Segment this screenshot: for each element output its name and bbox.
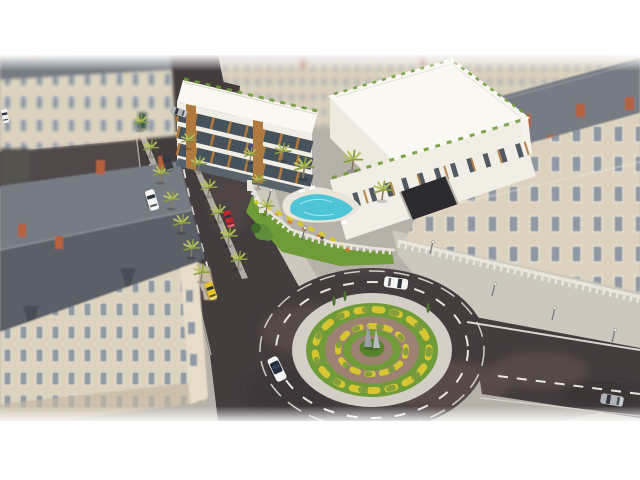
left-edge-blur xyxy=(0,148,30,188)
tilt-shift-fade-top xyxy=(0,55,640,71)
letterbox-top xyxy=(0,0,640,55)
island-cypress xyxy=(343,291,346,301)
letterbox-bottom xyxy=(0,421,640,480)
aerial-render xyxy=(0,0,640,480)
classical-building-corner-left xyxy=(0,156,216,428)
tilt-shift-fade-bottom xyxy=(0,406,640,421)
render-frame xyxy=(0,0,640,480)
gate-pillar xyxy=(247,180,252,191)
island-cypress xyxy=(426,303,429,313)
island-cypress xyxy=(332,296,335,306)
